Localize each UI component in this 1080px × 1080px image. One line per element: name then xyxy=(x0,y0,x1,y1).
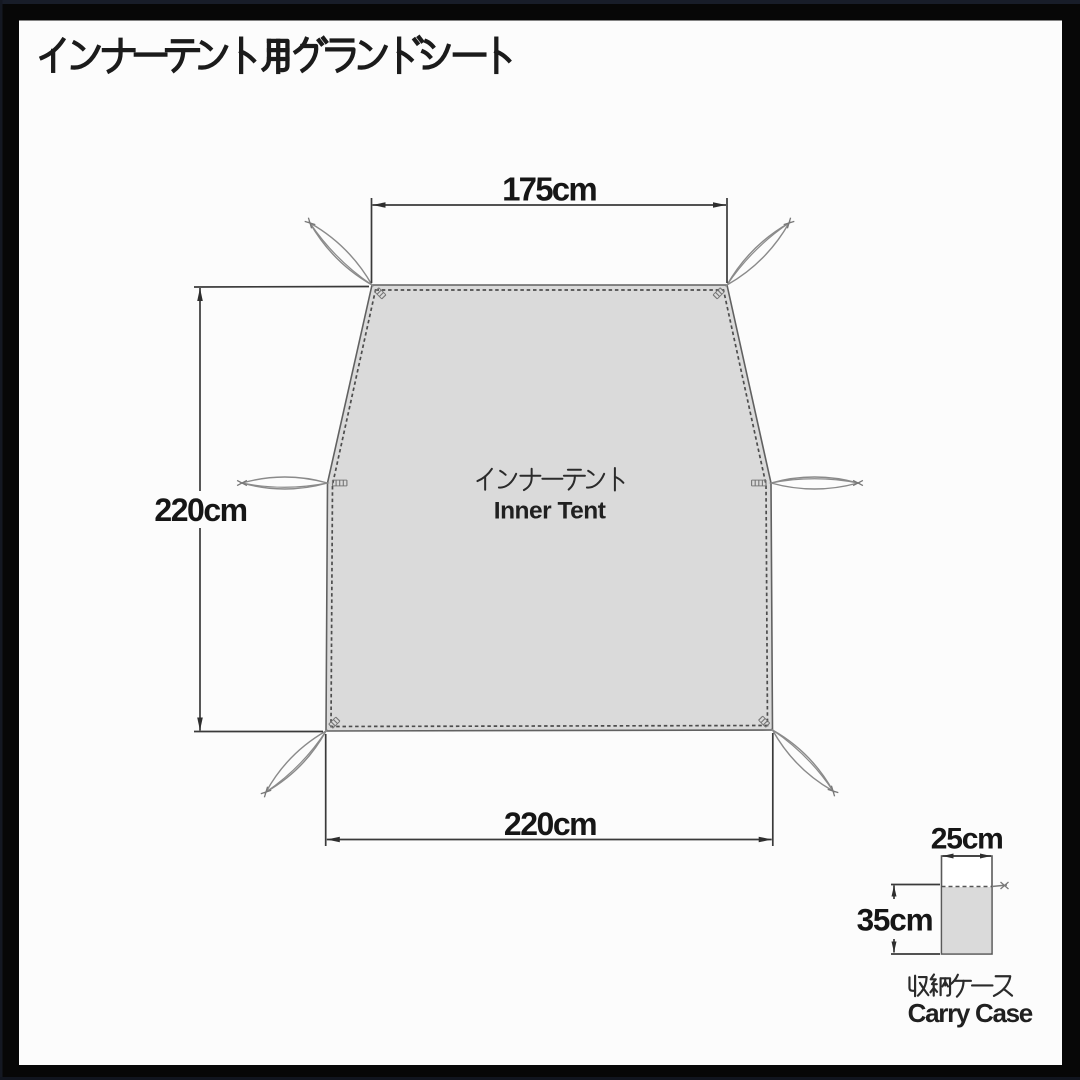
svg-text:220cm: 220cm xyxy=(154,492,246,528)
svg-text:Carry Case: Carry Case xyxy=(908,998,1033,1028)
svg-text:Inner Tent: Inner Tent xyxy=(494,498,606,525)
svg-text:220cm: 220cm xyxy=(504,806,596,842)
svg-text:175cm: 175cm xyxy=(502,171,596,208)
svg-text:25cm: 25cm xyxy=(931,823,1003,856)
svg-text:35cm: 35cm xyxy=(857,902,933,938)
